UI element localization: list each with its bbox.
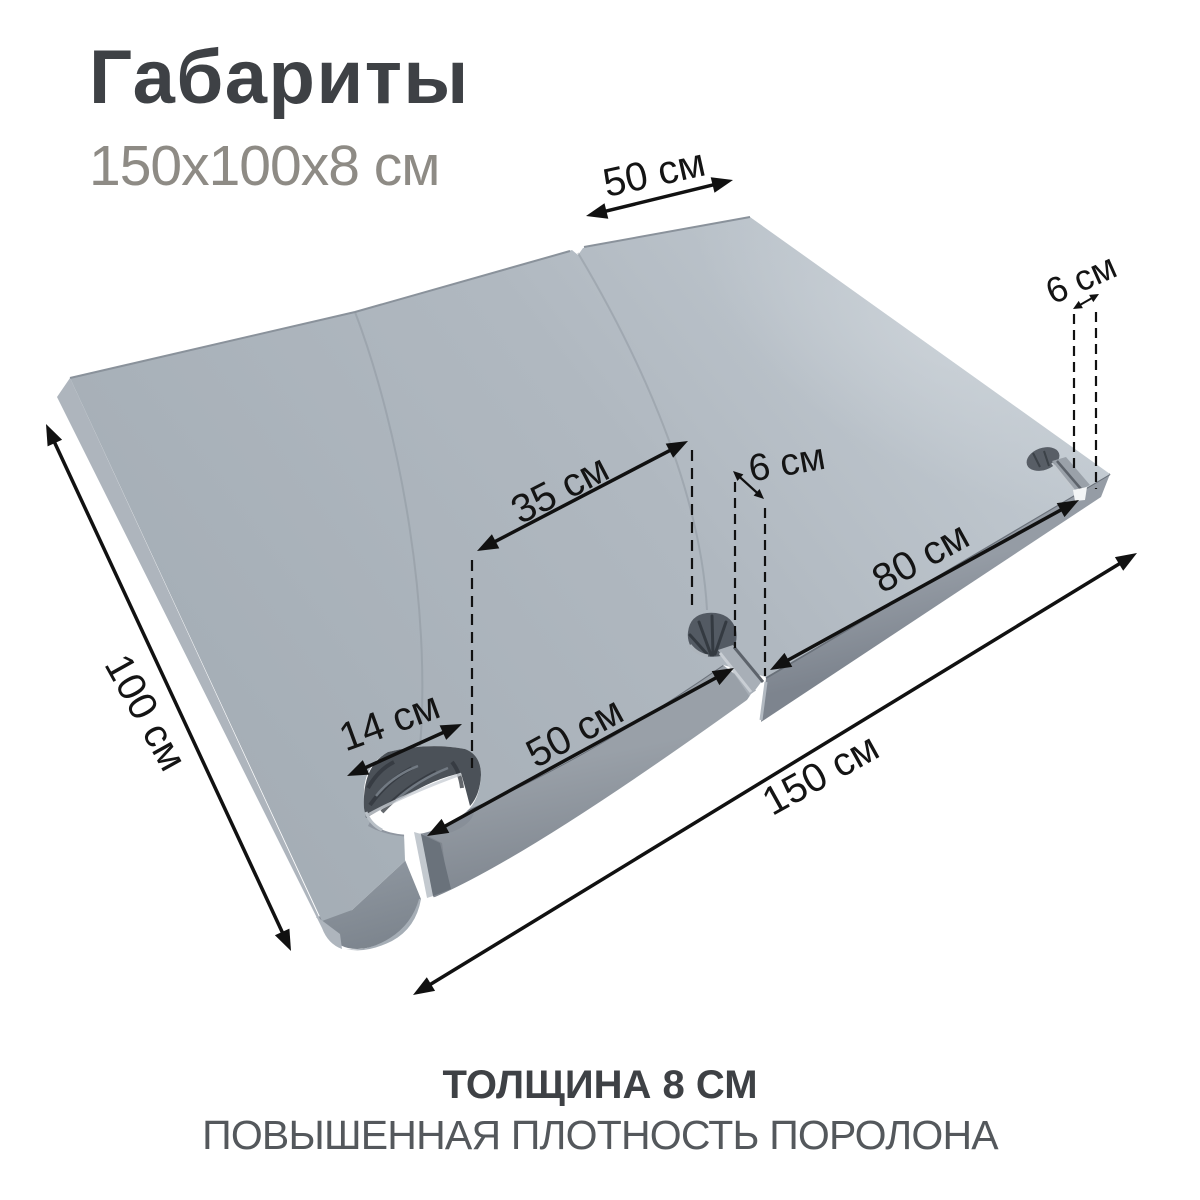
- svg-text:ПОВЫШЕННАЯ ПЛОТНОСТЬ ПОРОЛОНА: ПОВЫШЕННАЯ ПЛОТНОСТЬ ПОРОЛОНА: [202, 1112, 999, 1158]
- svg-text:ТОЛЩИНА 8 СМ: ТОЛЩИНА 8 СМ: [442, 1063, 757, 1107]
- svg-text:150 см: 150 см: [755, 725, 886, 824]
- svg-text:50 см: 50 см: [599, 141, 709, 206]
- svg-text:Габариты: Габариты: [89, 35, 470, 120]
- svg-text:150x100x8 см: 150x100x8 см: [89, 134, 439, 198]
- svg-text:6 см: 6 см: [1039, 245, 1122, 312]
